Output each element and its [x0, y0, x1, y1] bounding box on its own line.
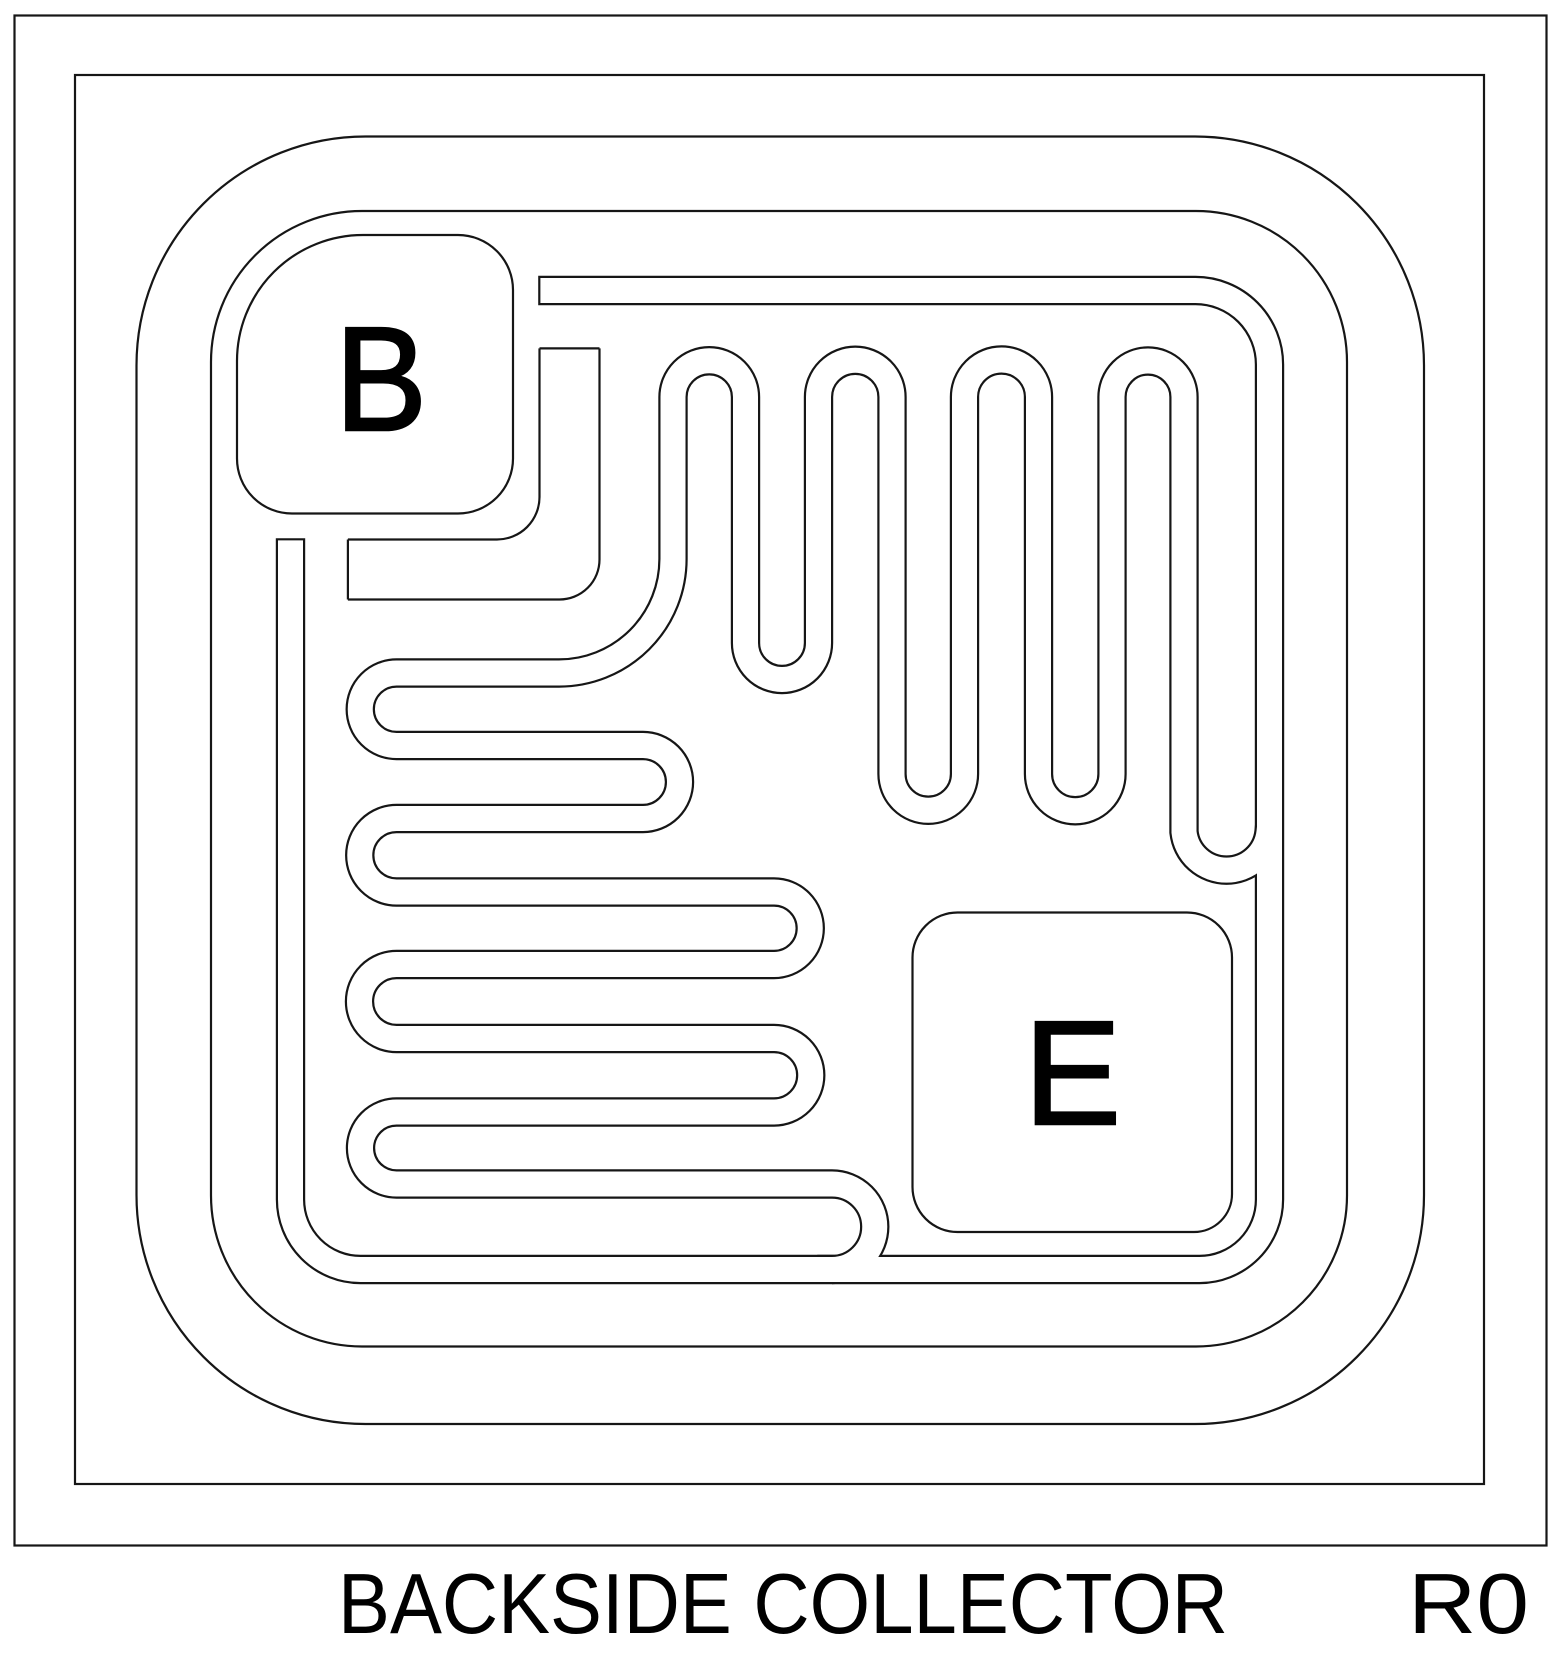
- svg-text:E: E: [1024, 991, 1121, 1156]
- svg-text:R0: R0: [1408, 1557, 1529, 1649]
- svg-text:BACKSIDE COLLECTOR: BACKSIDE COLLECTOR: [338, 1557, 1228, 1649]
- svg-text:B: B: [335, 297, 427, 462]
